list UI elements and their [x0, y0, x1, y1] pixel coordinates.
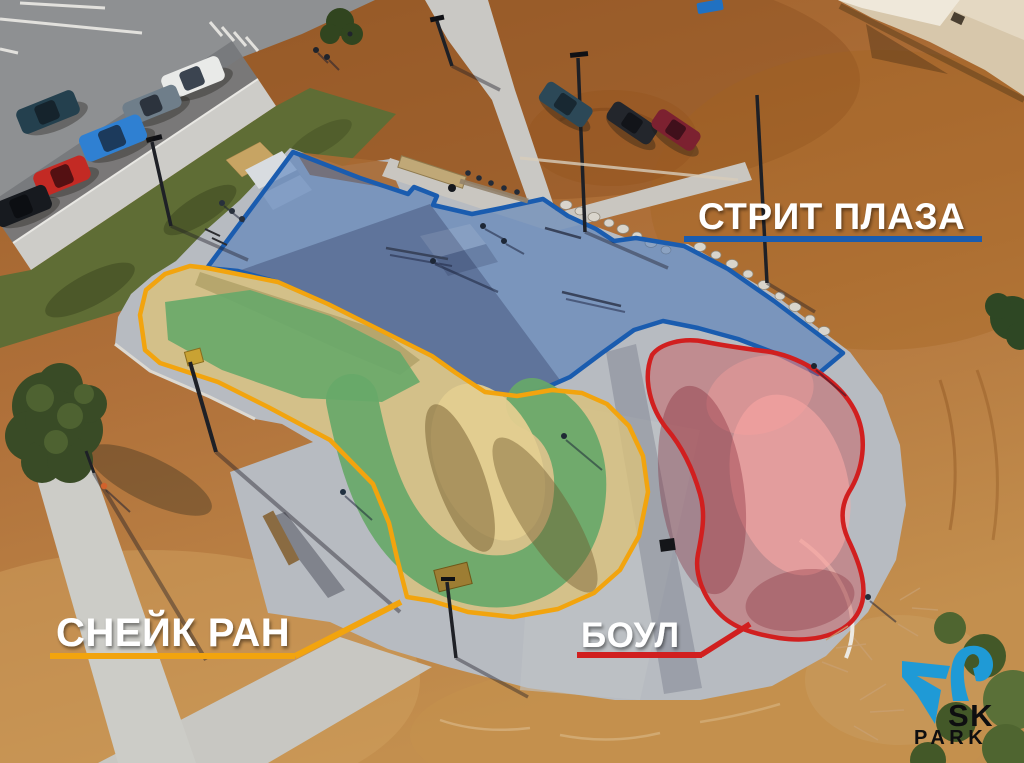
street-plaza-label: СТРИТ ПЛАЗА: [698, 196, 965, 237]
skatepark-aerial-photo: СТРИТ ПЛАЗА СНЕЙК РАН БОУЛ SK PARK: [0, 0, 1024, 763]
backpack: [448, 184, 456, 192]
trash-box: [659, 538, 676, 552]
skpark-logo-text-park: PARK: [914, 727, 987, 749]
snake-run-label: СНЕЙК РАН: [56, 609, 290, 655]
bowl-label: БОУЛ: [581, 616, 680, 655]
